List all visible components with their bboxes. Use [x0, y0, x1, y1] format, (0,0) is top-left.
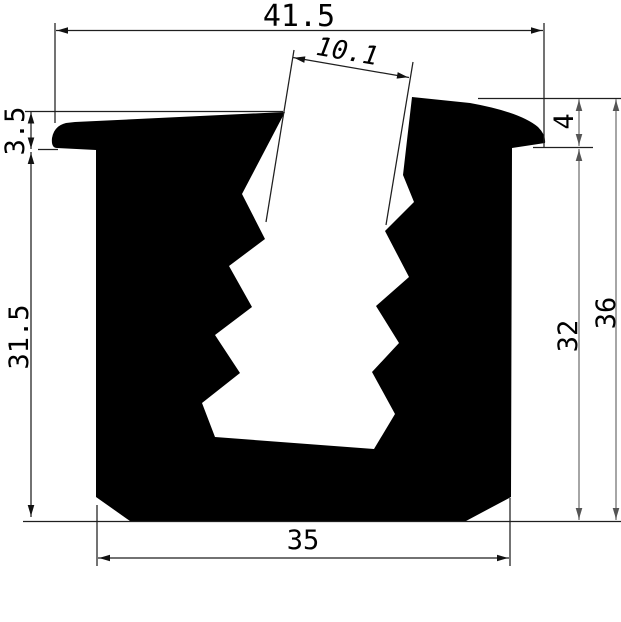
dim-label-41-5: 41.5	[263, 0, 335, 34]
dim-label-36: 36	[591, 297, 621, 330]
technical-drawing: 41.510.13.531.54323635	[0, 0, 621, 622]
dim-label-31-5: 31.5	[4, 304, 35, 369]
dim-label-4: 4	[549, 113, 580, 129]
dim-label-35: 35	[287, 525, 320, 556]
dim-label-3-5: 3.5	[0, 107, 31, 156]
dim-label-32: 32	[553, 320, 584, 353]
drawing-canvas: 41.510.13.531.54323635	[0, 0, 621, 622]
